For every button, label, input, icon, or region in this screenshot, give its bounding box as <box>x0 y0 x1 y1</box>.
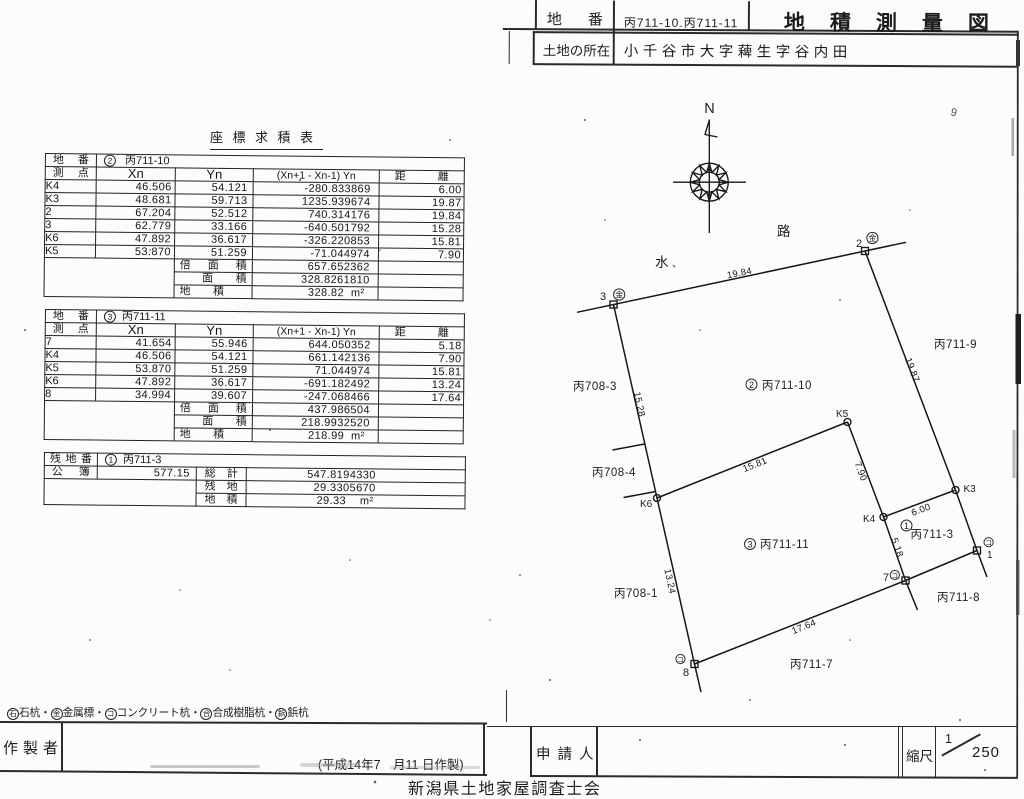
svg-text:5.18: 5.18 <box>888 537 905 559</box>
svg-text:9: 9 <box>949 106 958 119</box>
svg-text:水: 水 <box>655 255 669 270</box>
svg-text:丙708-4: 丙708-4 <box>592 467 636 479</box>
svg-text:19.84: 19.84 <box>726 266 753 282</box>
svg-text:3: 3 <box>747 540 752 550</box>
svg-text:15.81: 15.81 <box>741 455 769 475</box>
svg-text:19.87: 19.87 <box>902 356 921 384</box>
svg-text:コ: コ <box>677 656 684 664</box>
svg-text:N: N <box>704 101 714 117</box>
svg-text:丙711-9: 丙711-9 <box>934 339 977 351</box>
svg-text:K3: K3 <box>964 484 977 495</box>
svg-text:13.24: 13.24 <box>661 568 677 595</box>
svg-text:丙708-3: 丙708-3 <box>573 381 617 393</box>
svg-text:7.90: 7.90 <box>852 460 869 482</box>
svg-text:金: 金 <box>615 290 623 300</box>
svg-text:7: 7 <box>883 572 889 584</box>
svg-text:2: 2 <box>749 380 754 390</box>
svg-text:15.28: 15.28 <box>631 391 647 418</box>
svg-text:2: 2 <box>856 238 862 250</box>
svg-text:丙711-7: 丙711-7 <box>790 659 833 671</box>
svg-text:1: 1 <box>987 550 993 561</box>
svg-text:、: 、 <box>672 259 682 270</box>
svg-text:1: 1 <box>904 521 909 531</box>
svg-text:丙711-10: 丙711-10 <box>762 380 812 392</box>
svg-text:路: 路 <box>777 224 791 239</box>
svg-text:丙708-1: 丙708-1 <box>614 588 658 600</box>
svg-text:コ: コ <box>985 539 992 547</box>
svg-text:3: 3 <box>600 291 606 303</box>
svg-text:K4: K4 <box>863 514 876 525</box>
svg-text:6.00: 6.00 <box>910 502 932 519</box>
svg-text:丙711-11: 丙711-11 <box>760 539 809 551</box>
svg-text:17.64: 17.64 <box>790 617 818 637</box>
svg-text:K5: K5 <box>836 409 849 420</box>
svg-text:コ: コ <box>891 572 898 580</box>
svg-text:8: 8 <box>683 667 689 679</box>
svg-text:K6: K6 <box>640 499 653 510</box>
svg-text:金: 金 <box>868 233 876 243</box>
svg-text:丙711-3: 丙711-3 <box>911 529 954 541</box>
svg-text:丙711-8: 丙711-8 <box>937 592 980 604</box>
